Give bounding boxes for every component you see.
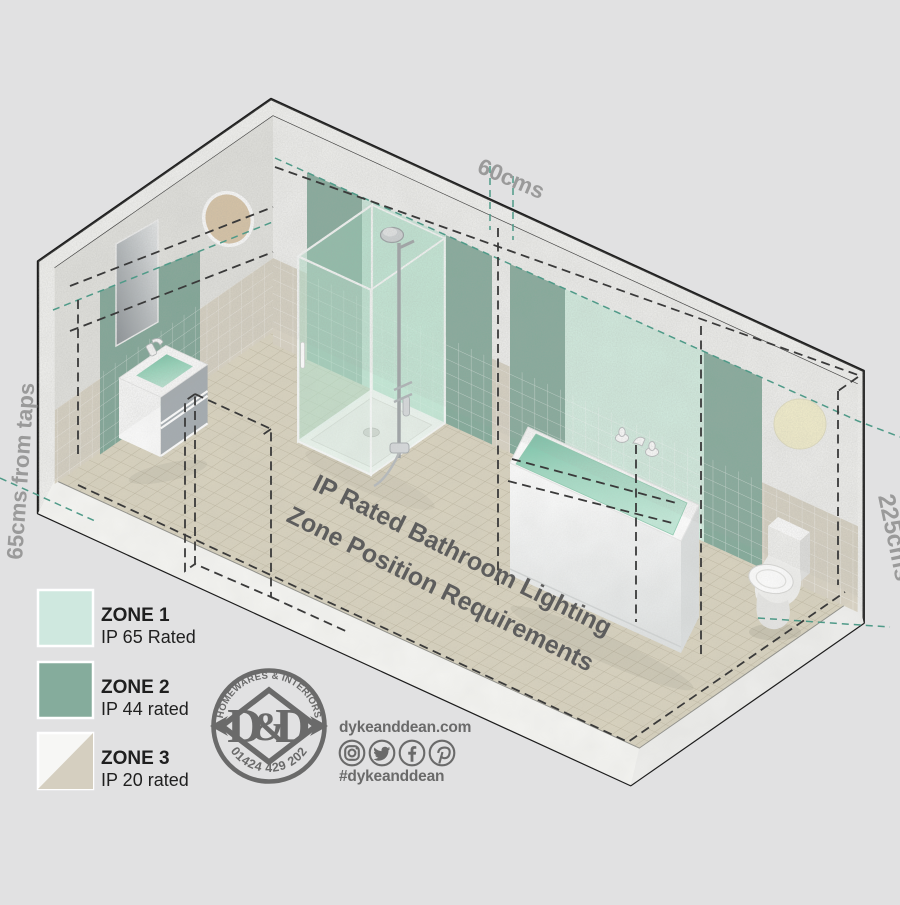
- svg-text:ZONE 2: ZONE 2: [101, 677, 170, 698]
- svg-text:dykeanddean.com: dykeanddean.com: [339, 719, 471, 736]
- svg-text:IP 44 rated: IP 44 rated: [101, 699, 189, 719]
- svg-text:IP 65 Rated: IP 65 Rated: [101, 627, 196, 647]
- svg-text:#dykeanddean: #dykeanddean: [339, 768, 444, 785]
- svg-text:IP 20 rated: IP 20 rated: [101, 770, 189, 790]
- svg-text:&: &: [252, 704, 285, 749]
- svg-text:ZONE 1: ZONE 1: [101, 605, 170, 626]
- svg-text:ZONE 3: ZONE 3: [101, 748, 170, 769]
